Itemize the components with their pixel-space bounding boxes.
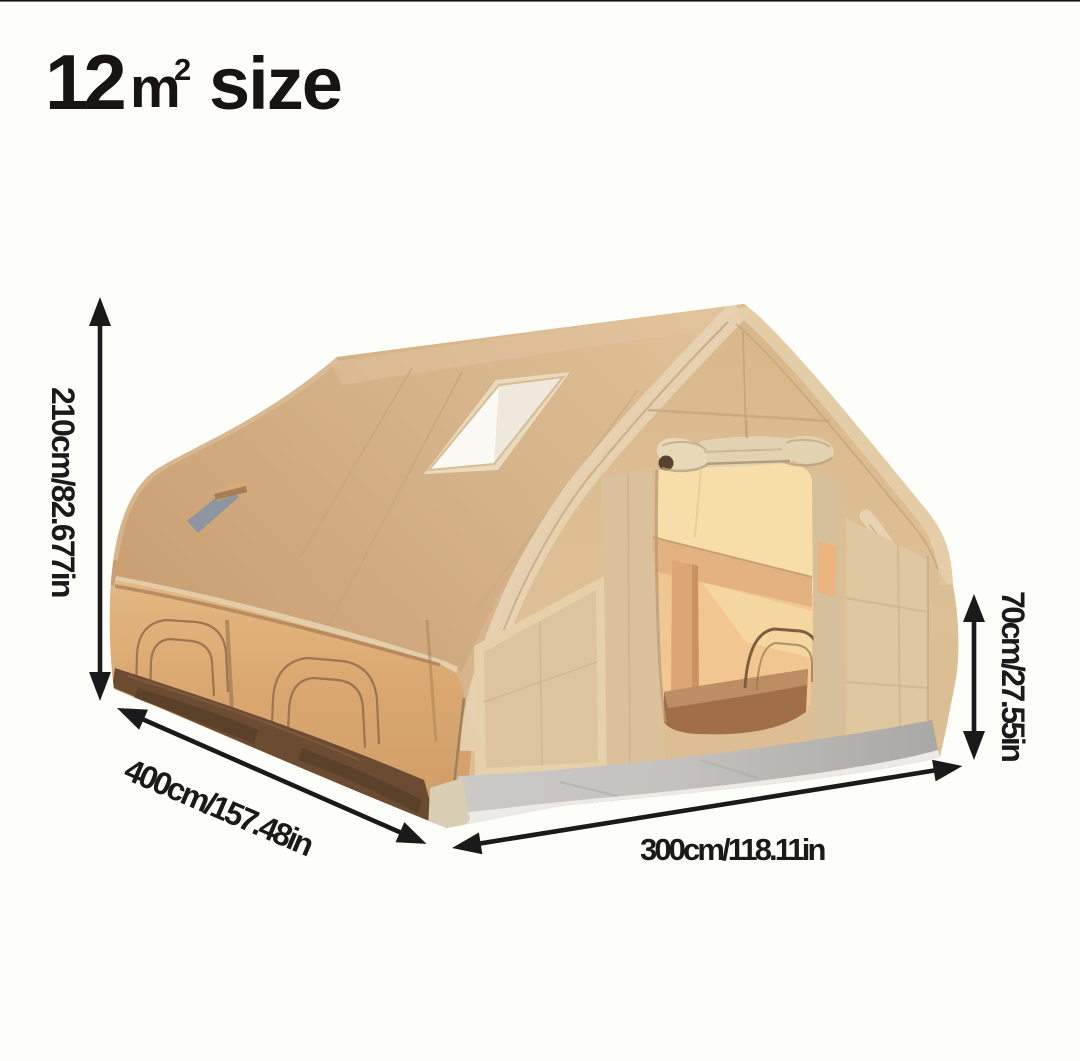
svg-text:210cm/82.677in: 210cm/82.677in: [45, 387, 81, 597]
svg-text:300cm/118.11in: 300cm/118.11in: [640, 832, 825, 867]
svg-text:12: 12: [45, 38, 124, 126]
svg-text:size: size: [209, 42, 341, 125]
svg-text:70cm/27.55in: 70cm/27.55in: [995, 591, 1031, 761]
svg-text:2: 2: [174, 52, 191, 87]
